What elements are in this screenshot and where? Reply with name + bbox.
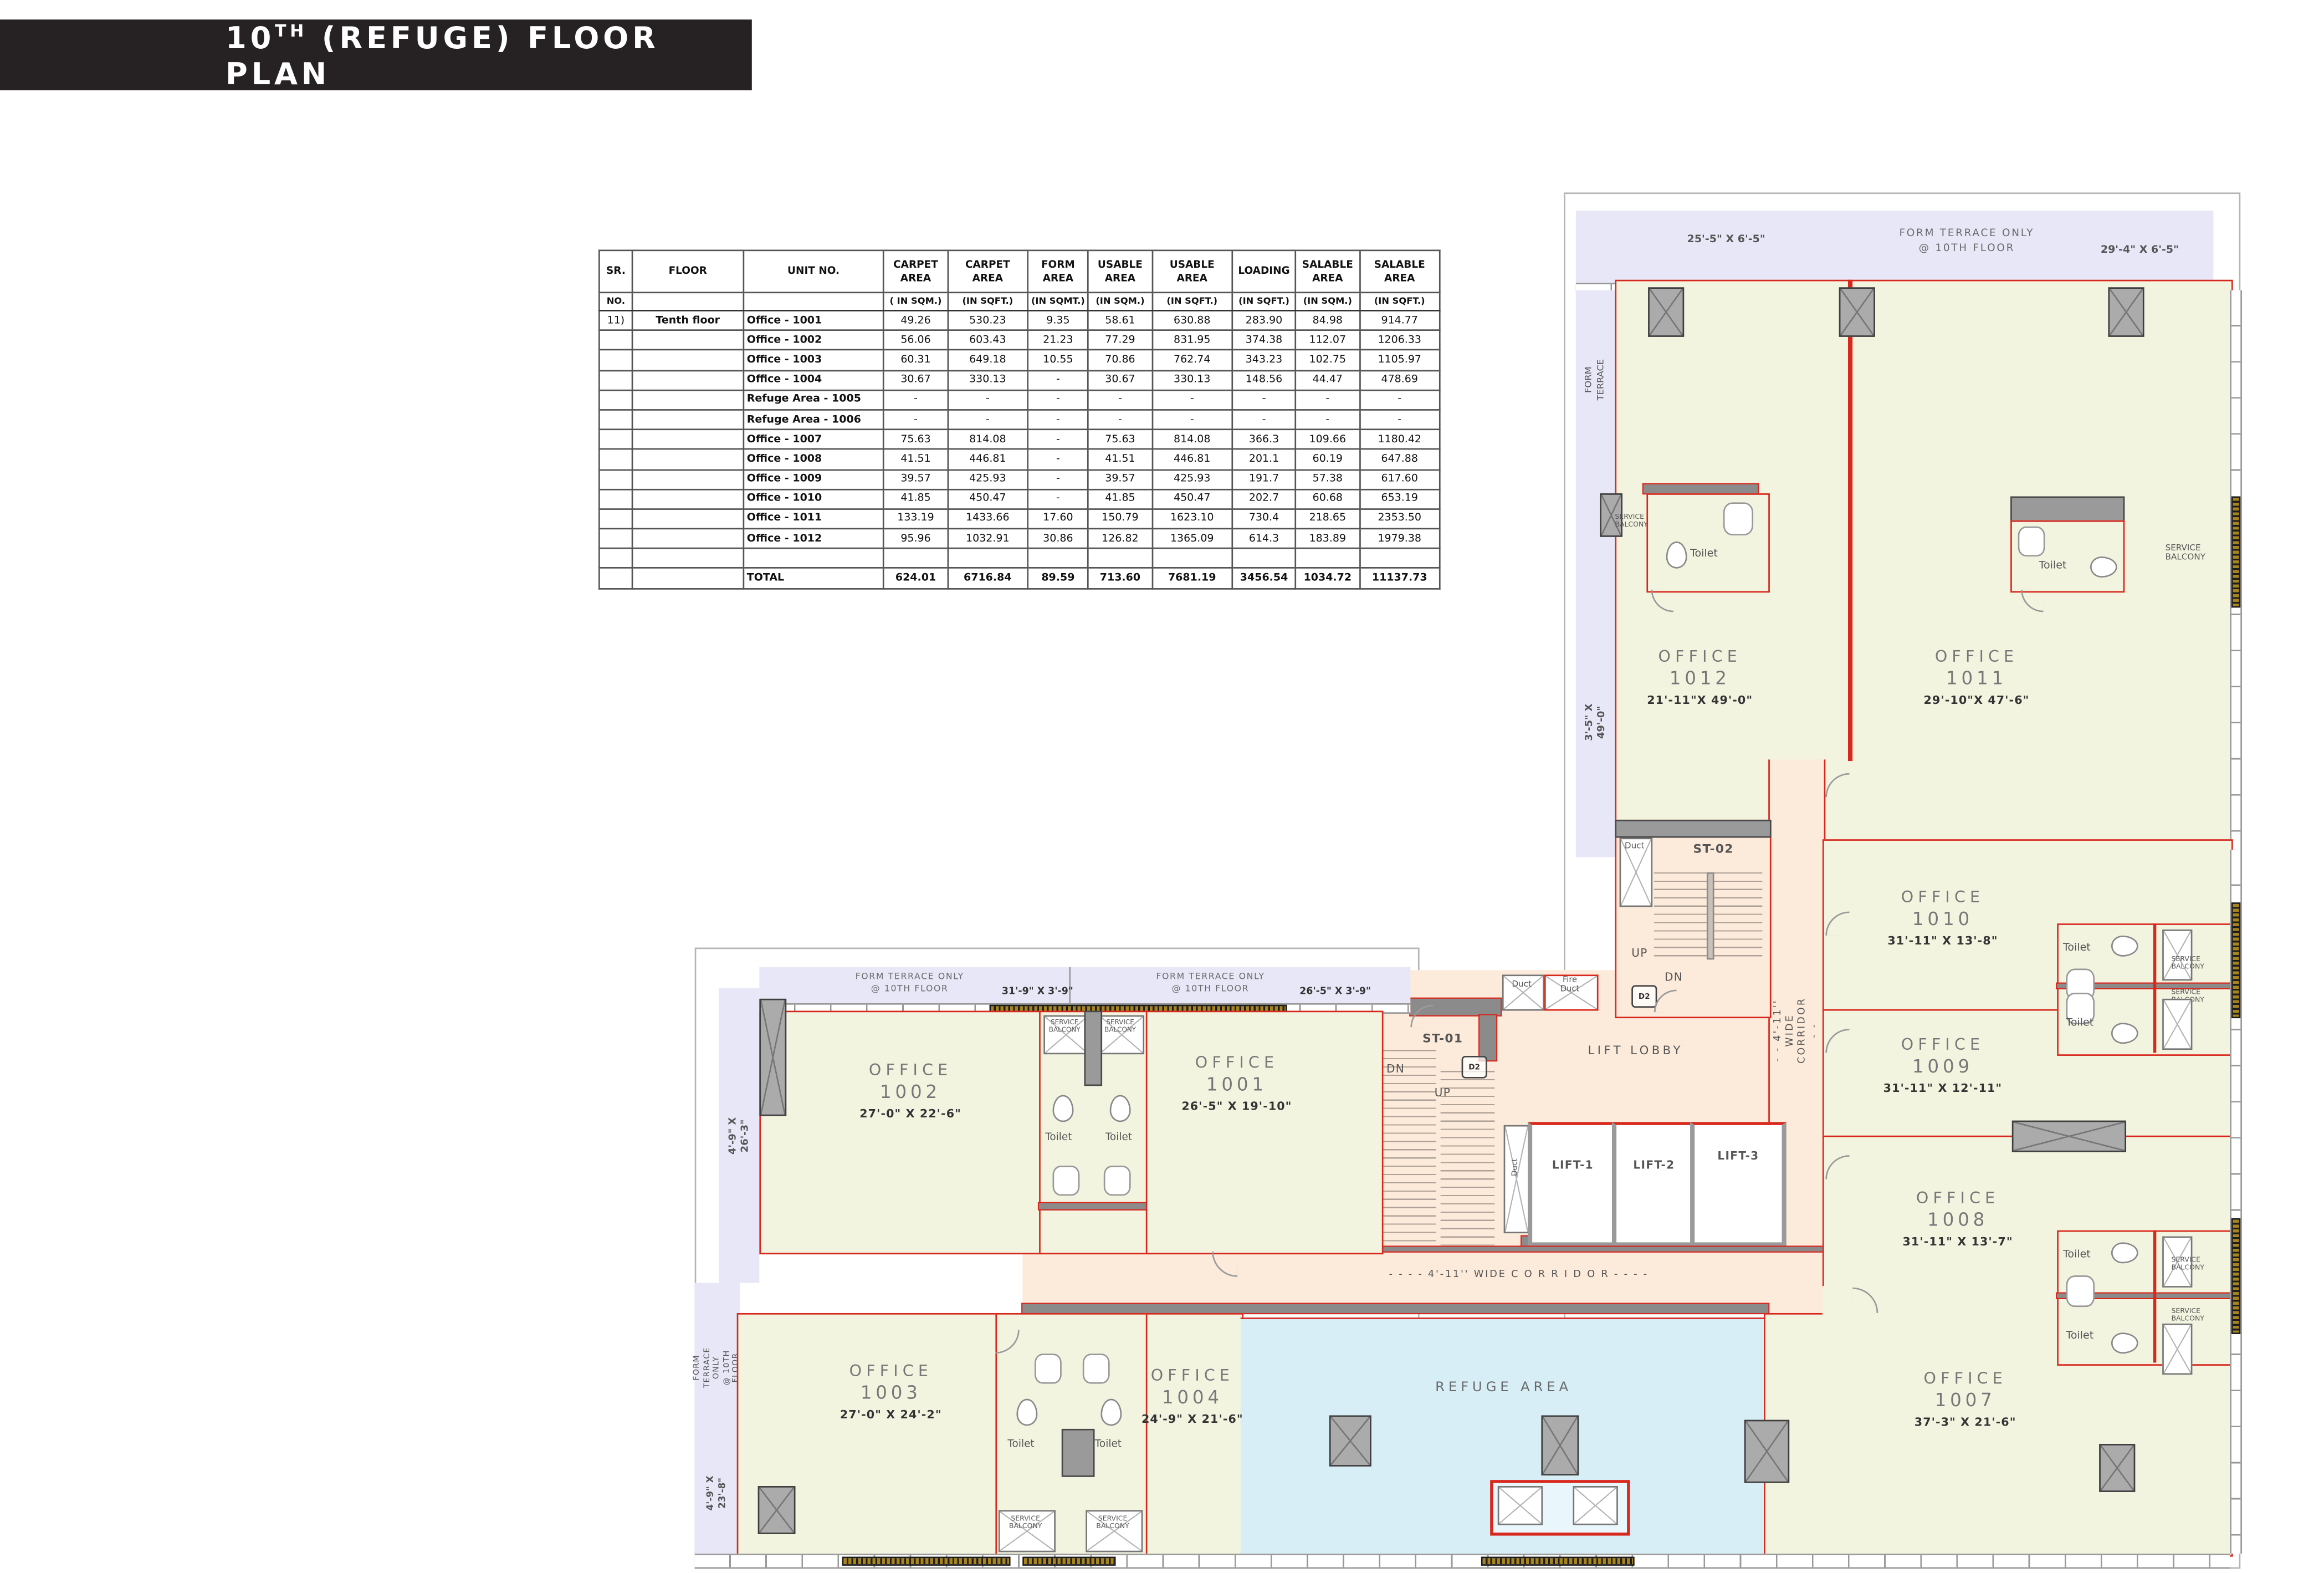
corridor-label-horizontal: - - - - 4'-11'' WIDE C O R R I D O R - -…: [1218, 1268, 1819, 1280]
area-cell: 343.23: [1232, 350, 1296, 370]
toilet-label: Toilet: [2066, 1330, 2117, 1342]
column: [759, 999, 786, 1116]
area-cell: -: [1359, 390, 1440, 410]
area-cell: -: [1152, 410, 1232, 430]
area-cell: 109.66: [1296, 430, 1359, 450]
room-office-1008: OFFICE100831'-11" X 13'-7": [1882, 1188, 2033, 1250]
area-cell: 60.31: [884, 350, 948, 370]
wall: [2153, 923, 2157, 1053]
toilet-icon: [1053, 1095, 1074, 1122]
area-cell: [599, 549, 632, 569]
room-office-1002: OFFICE100227'-0" X 22'-6": [839, 1060, 982, 1122]
service-balcony-label: SERVICE BALCONY: [999, 1516, 1053, 1532]
terrace-dim-vertical: 3'-5" X 49'-0": [1576, 624, 1615, 820]
area-cell: 44.47: [1296, 370, 1359, 390]
area-cell: 41.51: [1088, 450, 1152, 469]
terrace-label-vertical: FORM TERRACE: [1576, 308, 1615, 451]
area-cell: 914.77: [1359, 310, 1440, 330]
area-cell: [599, 370, 632, 390]
area-cell: [599, 450, 632, 469]
louver-band: [842, 1557, 1011, 1566]
column: [1062, 1429, 1095, 1477]
area-cell: 41.85: [1088, 489, 1152, 509]
column-unit: (IN SQM.): [1296, 293, 1359, 311]
wall: [1022, 1304, 1768, 1313]
area-cell: Office - 1011: [743, 509, 884, 529]
room-office-1009: OFFICE100931'-11" X 12'-11": [1867, 1035, 2018, 1097]
up-label: UP: [1631, 946, 1661, 959]
area-cell: [1296, 549, 1359, 569]
duct-shaft: [1573, 1486, 1617, 1525]
stair-treads: [1713, 872, 1763, 957]
area-cell: 713.60: [1088, 569, 1152, 589]
area-cell: -: [948, 410, 1028, 430]
column-header: SALABLE AREA: [1359, 251, 1440, 293]
service-balcony-label: SERVICE BALCONY: [2171, 1309, 2234, 1325]
column-unit: NO.: [599, 293, 632, 311]
area-cell: Office - 1003: [743, 350, 884, 370]
column-header: FORM AREA: [1028, 251, 1088, 293]
column: [1541, 1415, 1579, 1475]
service-balcony-label: SERVICE BALCONY: [2171, 1258, 2234, 1274]
west-terrace-top: FORM TERRACE ONLY@ 10TH FLOOR 31'-9" X 3…: [759, 967, 1410, 1003]
area-cell: 330.13: [948, 370, 1028, 390]
area-cell: [632, 370, 743, 390]
louver-band: [1481, 1557, 1635, 1566]
column-unit: (IN SQMT.): [1028, 293, 1088, 311]
toilet-icon: [1100, 1399, 1122, 1426]
area-cell: 374.38: [1232, 330, 1296, 350]
area-cell: 7681.19: [1152, 569, 1232, 589]
area-cell: 30.67: [1088, 370, 1152, 390]
area-cell: -: [1028, 390, 1088, 410]
column: [1329, 1415, 1371, 1466]
area-cell: -: [1152, 390, 1232, 410]
lift-1-label: LIFT-1: [1532, 1158, 1614, 1171]
column: [1744, 1420, 1789, 1483]
area-cell: -: [1359, 410, 1440, 430]
area-cell: 283.90: [1232, 310, 1296, 330]
room-office-1011: OFFICE101129'-10"X 47'-6": [1898, 647, 2056, 709]
floor-plan-sheet: 10TH (REFUGE) FLOOR PLAN SR.FLOORUNIT NO…: [0, 0, 2324, 1573]
toilet-label: Toilet: [1035, 1131, 1083, 1143]
area-cell: -: [1028, 450, 1088, 469]
area-cell: 60.68: [1296, 489, 1359, 509]
duct-shaft: [1498, 1486, 1543, 1525]
title-bar: 10TH (REFUGE) FLOOR PLAN: [0, 19, 752, 90]
area-cell: 3456.54: [1232, 569, 1296, 589]
area-cell: [632, 450, 743, 469]
area-cell: 95.96: [884, 529, 948, 549]
area-cell: [599, 569, 632, 589]
duct-shaft: [2162, 1324, 2192, 1375]
area-cell: Refuge Area - 1005: [743, 390, 884, 410]
north-terrace: 25'-5" X 6'-5" FORM TERRACE ONLY@ 10TH F…: [1576, 211, 2214, 283]
dn-label: DN: [1665, 970, 1695, 983]
area-cell: [1359, 549, 1440, 569]
column-header: USABLE AREA: [1088, 251, 1152, 293]
area-cell: 183.89: [1296, 529, 1359, 549]
door-tag-d2: D2: [1631, 985, 1657, 1008]
refuge-area-label: REFUGE AREA: [1399, 1381, 1609, 1396]
area-cell: [599, 529, 632, 549]
area-cell: 630.88: [1152, 310, 1232, 330]
area-cell: [632, 529, 743, 549]
area-cell: 84.98: [1296, 310, 1359, 330]
area-cell: 39.57: [884, 469, 948, 489]
area-cell: -: [1028, 410, 1088, 430]
area-cell: 1623.10: [1152, 509, 1232, 529]
terrace-label-vertical: FORM TERRACE ONLY @ 10TH FLOOR: [695, 1288, 740, 1447]
area-cell: -: [1296, 390, 1359, 410]
area-cell: 1433.66: [948, 509, 1028, 529]
terrace-dim: 26'-5" X 3'-9": [1283, 985, 1388, 997]
lift-3-label: LIFT-3: [1695, 1149, 1782, 1162]
area-cell: 30.86: [1028, 529, 1088, 549]
column-header: SR.: [599, 251, 632, 293]
area-cell: -: [1296, 410, 1359, 430]
column-unit: [632, 293, 743, 311]
area-cell: 70.86: [1088, 350, 1152, 370]
office-1004-room: [1146, 1313, 1243, 1557]
area-cell: [632, 489, 743, 509]
lift-2: LIFT-2: [1612, 1122, 1696, 1247]
area-cell: 58.61: [1088, 310, 1152, 330]
area-cell: [1088, 549, 1152, 569]
area-cell: 1105.97: [1359, 350, 1440, 370]
terrace-title: FORM TERRACE ONLY@ 10TH FLOOR: [820, 972, 1000, 996]
column-header: UNIT NO.: [743, 251, 884, 293]
room-office-1003: OFFICE100327'-0" X 24'-2": [820, 1361, 963, 1423]
area-cell: Office - 1004: [743, 370, 884, 390]
area-cell: 647.88: [1359, 450, 1440, 469]
area-cell: 17.60: [1028, 509, 1088, 529]
area-cell: -: [1232, 390, 1296, 410]
duct-label: Duct: [1618, 842, 1651, 851]
lift-3: LIFT-3: [1690, 1122, 1786, 1247]
area-cell: [632, 330, 743, 350]
area-cell: 60.19: [1296, 450, 1359, 469]
area-cell: 814.08: [1152, 430, 1232, 450]
area-cell: 9.35: [1028, 310, 1088, 330]
column: [1839, 287, 1875, 337]
toilet-label: Toilet: [995, 1438, 1046, 1450]
area-cell: 330.13: [1152, 370, 1232, 390]
stair-treads: [1380, 1050, 1436, 1245]
st02-label: ST-02: [1693, 842, 1763, 856]
column-header: SALABLE AREA: [1296, 251, 1359, 293]
area-cell: 11): [599, 310, 632, 330]
toilet-label: Toilet: [1095, 1131, 1143, 1143]
area-cell: 39.57: [1088, 469, 1152, 489]
terrace-dim: 25'-5" X 6'-5": [1658, 233, 1794, 246]
terrace-dim-vertical: 4'-9" X 23'-8": [695, 1438, 740, 1549]
column-unit: (IN SQFT.): [1232, 293, 1296, 311]
area-cell: -: [1028, 430, 1088, 450]
area-cell: -: [884, 410, 948, 430]
area-cell: 1180.42: [1359, 430, 1440, 450]
wall: [2153, 1230, 2157, 1363]
area-cell: -: [884, 390, 948, 410]
area-cell: 77.29: [1088, 330, 1152, 350]
toilet-label: Toilet: [2063, 942, 2114, 954]
area-cell: 133.19: [884, 509, 948, 529]
area-cell: 89.59: [1028, 569, 1088, 589]
area-cell: [632, 569, 743, 589]
area-cell: 6716.84: [948, 569, 1028, 589]
area-cell: 11137.73: [1359, 569, 1440, 589]
area-cell: -: [1028, 469, 1088, 489]
column: [1084, 1011, 1103, 1086]
area-cell: 649.18: [948, 350, 1028, 370]
area-cell: 112.07: [1296, 330, 1359, 350]
sink-icon: [1035, 1354, 1062, 1383]
lift-2-label: LIFT-2: [1616, 1158, 1692, 1171]
duct-shaft: [2162, 999, 2192, 1050]
lift-1: LIFT-1: [1528, 1122, 1618, 1247]
area-cell: 41.51: [884, 450, 948, 469]
area-cell: 425.93: [948, 469, 1028, 489]
stair-landing-rail: [1707, 872, 1714, 959]
louver-band: [2231, 1218, 2240, 1334]
area-cell: 366.3: [1232, 430, 1296, 450]
area-cell: [599, 430, 632, 450]
sink-icon: [1053, 1166, 1080, 1196]
area-cell: [632, 350, 743, 370]
area-cell: [599, 350, 632, 370]
area-cell: 75.63: [884, 430, 948, 450]
terrace-dim: 29'-4" X 6'-5": [2072, 244, 2207, 256]
column: [1648, 287, 1684, 337]
louver-band: [1022, 1557, 1115, 1566]
service-balcony-label: SERVICE BALCONY: [1099, 1020, 1141, 1035]
terrace-dim: 31'-9" X 3'-9": [985, 985, 1090, 997]
service-balcony-label: SERVICE BALCONY: [2171, 957, 2234, 973]
area-cell: [1028, 549, 1088, 569]
area-cell: 56.06: [884, 330, 948, 350]
louver-band: [2231, 496, 2240, 607]
duct-shaft: [1502, 974, 1544, 1010]
column-header: USABLE AREA: [1152, 251, 1232, 293]
toilet-label: Toilet: [2039, 559, 2093, 571]
toilet-label: Toilet: [2063, 1248, 2114, 1260]
room-office-1004: OFFICE100424'-9" X 21'-6": [1131, 1366, 1255, 1428]
terrace-title: FORM TERRACE ONLY@ 10TH FLOOR: [1877, 226, 2057, 256]
area-cell: 425.93: [1152, 469, 1232, 489]
sink-icon: [1083, 1354, 1110, 1383]
area-cell: 201.1: [1232, 450, 1296, 469]
column-unit: (IN SQFT.): [1359, 293, 1440, 311]
area-cell: 730.4: [1232, 509, 1296, 529]
area-cell: 478.69: [1359, 370, 1440, 390]
area-cell: 614.3: [1232, 529, 1296, 549]
area-table: SR.FLOORUNIT NO.CARPET AREACARPET AREAFO…: [598, 249, 1441, 589]
area-cell: 617.60: [1359, 469, 1440, 489]
area-cell: 10.55: [1028, 350, 1088, 370]
sink-icon: [2066, 1275, 2095, 1307]
area-cell: 653.19: [1359, 489, 1440, 509]
area-cell: [743, 549, 884, 569]
area-cell: [1152, 549, 1232, 569]
area-cell: [599, 390, 632, 410]
area-cell: 148.56: [1232, 370, 1296, 390]
area-cell: [632, 410, 743, 430]
area-cell: 126.82: [1088, 529, 1152, 549]
area-cell: -: [1088, 410, 1152, 430]
area-cell: 150.79: [1088, 509, 1152, 529]
area-cell: [599, 509, 632, 529]
column-unit: ( IN SQM.): [884, 293, 948, 311]
room-office-1012: OFFICE101221'-11"X 49'-0": [1629, 647, 1772, 709]
area-cell: [632, 469, 743, 489]
up-label: UP: [1435, 1086, 1468, 1099]
column-unit: (IN SQM.): [1088, 293, 1152, 311]
column: [2012, 1121, 2126, 1152]
area-cell: Refuge Area - 1006: [743, 410, 884, 430]
door-tag-d2: D2: [1462, 1056, 1487, 1079]
area-cell: 30.67: [884, 370, 948, 390]
duct-label: Duct: [1502, 980, 1542, 989]
area-cell: -: [1232, 410, 1296, 430]
column-unit: (IN SQFT.): [948, 293, 1028, 311]
column: [2099, 1444, 2135, 1492]
duct-shaft: [2162, 929, 2192, 980]
area-cell: [599, 489, 632, 509]
area-cell: -: [1088, 390, 1152, 410]
area-cell: 530.23: [948, 310, 1028, 330]
toilet-label: Toilet: [1690, 548, 1750, 560]
area-cell: TOTAL: [743, 569, 884, 589]
area-cell: 41.85: [884, 489, 948, 509]
area-cell: [632, 509, 743, 529]
toilet-icon: [1016, 1399, 1037, 1426]
area-cell: 1365.09: [1152, 529, 1232, 549]
area-cell: 1206.33: [1359, 330, 1440, 350]
area-cell: 446.81: [1152, 450, 1232, 469]
column-header: CARPET AREA: [884, 251, 948, 293]
column-header: LOADING: [1232, 251, 1296, 293]
area-cell: 450.47: [948, 489, 1028, 509]
area-cell: [884, 549, 948, 569]
wall: [1039, 1203, 1146, 1209]
area-cell: Office - 1008: [743, 450, 884, 469]
area-cell: 21.23: [1028, 330, 1088, 350]
room-office-1007: OFFICE100737'-3" X 21'-6": [1882, 1368, 2047, 1431]
sink-icon: [2018, 527, 2045, 556]
wall: [1644, 484, 1758, 493]
office-1002-room: [759, 1011, 1042, 1255]
area-cell: Office - 1002: [743, 330, 884, 350]
sink-icon: [1723, 502, 1753, 535]
lift-lobby-label: LIFT LOBBY: [1588, 1044, 1738, 1057]
area-cell: Tenth floor: [632, 310, 743, 330]
sink-icon: [1104, 1166, 1131, 1196]
area-cell: 603.43: [948, 330, 1028, 350]
area-cell: Office - 1001: [743, 310, 884, 330]
terrace-title: FORM TERRACE ONLY@ 10TH FLOOR: [1120, 972, 1301, 996]
room-office-1001: OFFICE100126'-5" X 19'-10": [1165, 1053, 1308, 1115]
area-cell: 57.38: [1296, 469, 1359, 489]
service-balcony-label: SERVICE BALCONY: [1086, 1516, 1140, 1532]
area-cell: 102.75: [1296, 350, 1359, 370]
area-cell: [599, 330, 632, 350]
area-cell: 762.74: [1152, 350, 1232, 370]
page-title: 10TH (REFUGE) FLOOR PLAN: [0, 19, 752, 91]
area-cell: 814.08: [948, 430, 1028, 450]
area-cell: [632, 390, 743, 410]
louver-band: [2231, 902, 2240, 1018]
area-cell: 1979.38: [1359, 529, 1440, 549]
area-cell: 191.7: [1232, 469, 1296, 489]
area-cell: -: [1028, 489, 1088, 509]
toilet-icon: [1666, 542, 1687, 569]
terrace-dim-vertical: 4'-9" X 26'-3": [719, 1038, 759, 1233]
area-cell: -: [1028, 370, 1088, 390]
column-header: FLOOR: [632, 251, 743, 293]
area-cell: Office - 1009: [743, 469, 884, 489]
dn-label: DN: [1386, 1062, 1420, 1075]
area-cell: 202.7: [1232, 489, 1296, 509]
stair-treads: [1654, 872, 1707, 957]
area-cell: 1032.91: [948, 529, 1028, 549]
area-cell: 218.65: [1296, 509, 1359, 529]
st01-label: ST-01: [1422, 1032, 1492, 1045]
toilet-label: Toilet: [2066, 1017, 2117, 1029]
area-cell: 831.95: [1152, 330, 1232, 350]
column-unit: [743, 293, 884, 311]
area-cell: 2353.50: [1359, 509, 1440, 529]
service-balcony-label: SERVICE BALCONY: [2166, 544, 2231, 564]
area-cell: [948, 549, 1028, 569]
area-statement-table: SR.FLOORUNIT NO.CARPET AREACARPET AREAFO…: [598, 249, 1442, 589]
area-cell: Office - 1010: [743, 489, 884, 509]
area-cell: [599, 469, 632, 489]
column: [2108, 287, 2144, 337]
wall: [1848, 280, 1852, 761]
fire-duct-label: Fire Duct: [1544, 976, 1595, 994]
column: [2010, 496, 2125, 523]
duct-label: Duct: [1504, 1137, 1527, 1197]
toilet-icon: [1110, 1095, 1131, 1122]
area-cell: 624.01: [884, 569, 948, 589]
service-balcony-label: SERVICE BALCONY: [1043, 1020, 1086, 1035]
area-cell: 49.26: [884, 310, 948, 330]
column: [758, 1486, 796, 1534]
area-cell: -: [948, 390, 1028, 410]
room-office-1010: OFFICE101031'-11" X 13'-8": [1867, 887, 2018, 949]
column-unit: (IN SQFT.): [1152, 293, 1232, 311]
area-cell: Office - 1007: [743, 430, 884, 450]
area-cell: [1232, 549, 1296, 569]
column: [1615, 820, 1771, 838]
area-cell: [632, 549, 743, 569]
area-cell: 1034.72: [1296, 569, 1359, 589]
area-cell: Office - 1012: [743, 529, 884, 549]
column-header: CARPET AREA: [948, 251, 1028, 293]
area-cell: 450.47: [1152, 489, 1232, 509]
area-cell: [599, 410, 632, 430]
area-cell: 75.63: [1088, 430, 1152, 450]
area-cell: [632, 430, 743, 450]
area-cell: 446.81: [948, 450, 1028, 469]
office-1001-room: [1146, 1011, 1384, 1255]
